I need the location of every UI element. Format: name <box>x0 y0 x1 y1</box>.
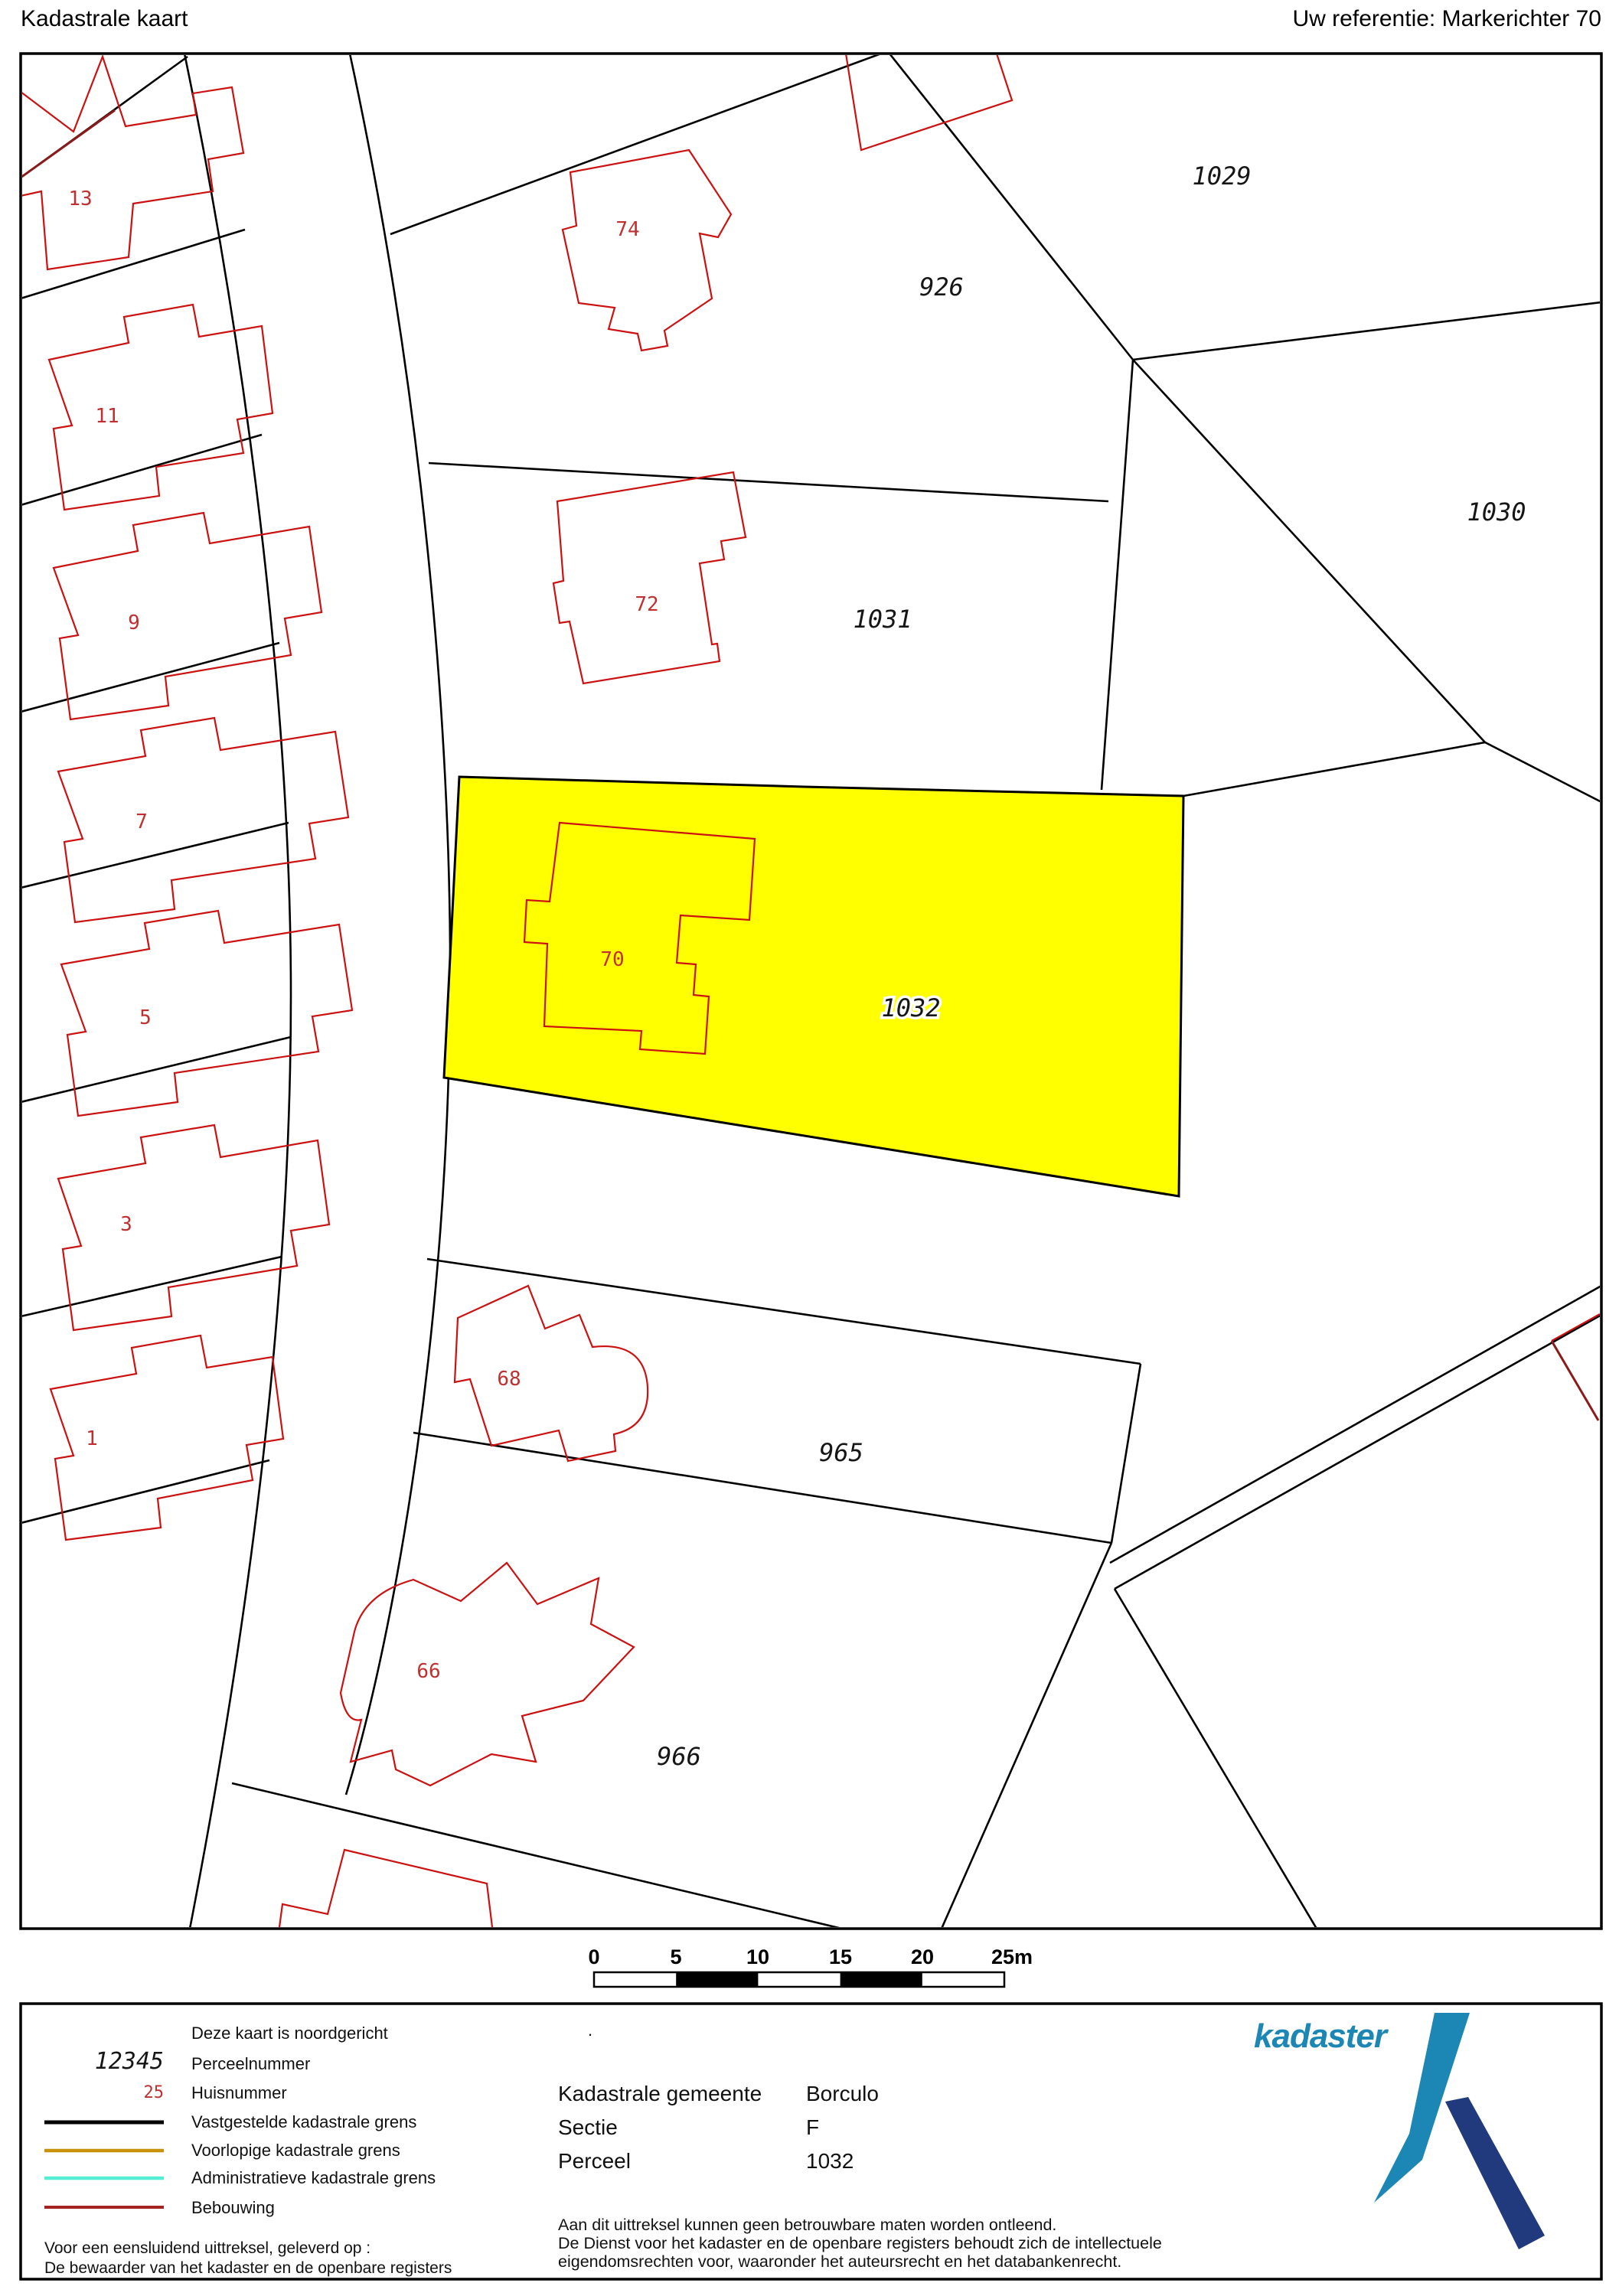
parcel-label-1032: 1032 <box>881 993 940 1022</box>
footer-eensluidend: Voor een eensluidend uittreksel, gelever… <box>44 2239 370 2258</box>
cadastral-map-canvas: 1029 926 1031 1030 1032 965 966 13 11 9 … <box>0 0 1619 2296</box>
house-label-74: 74 <box>615 218 639 241</box>
scale-tick-15: 15 <box>829 1945 852 1968</box>
house-label-13: 13 <box>68 188 92 210</box>
road-left-edge <box>184 54 291 1929</box>
legend-huisnummer: Huisnummer <box>191 2083 287 2103</box>
house-label-70: 70 <box>600 948 624 971</box>
detail-perceel-label: Perceel <box>558 2149 631 2174</box>
scale-tick-0: 0 <box>588 1945 599 1968</box>
boundary-965-top <box>427 1259 1141 1364</box>
boundary-lower-right <box>1115 1589 1317 1929</box>
legend-huisnummer-symbol: 25 <box>44 2083 164 2102</box>
house-label-7: 7 <box>135 810 148 833</box>
boundary-966-bottom <box>232 1783 842 1929</box>
boundary-965-right <box>1111 1364 1141 1543</box>
boundary-1031-1030 <box>1102 360 1133 790</box>
scale-tick-25m: 25m <box>991 1945 1033 1968</box>
parcel-label-965: 965 <box>819 1438 863 1467</box>
legend-vastgestelde-grens: Vastgestelde kadastrale grens <box>191 2112 416 2132</box>
legend-administratieve-grens: Administratieve kadastrale grens <box>191 2168 436 2188</box>
house-label-11: 11 <box>95 405 119 428</box>
parcel-label-1030: 1030 <box>1467 497 1526 527</box>
legend-voorlopige-grens: Voorlopige kadastrale grens <box>191 2141 400 2161</box>
legend-perceelnummer-symbol: 12345 <box>44 2048 164 2075</box>
kadaster-logo-icon <box>1374 2013 1545 2249</box>
road-right-edge <box>346 54 450 1795</box>
parcel-label-966: 966 <box>657 1742 701 1771</box>
road2-lower-edge <box>1115 1315 1601 1589</box>
boundary-966-right <box>942 1543 1111 1929</box>
detail-perceel-value: 1032 <box>806 2149 854 2174</box>
map-content: 1029 926 1031 1030 1032 965 966 13 11 9 … <box>21 54 1601 1929</box>
detail-gemeente-value: Borculo <box>806 2082 879 2106</box>
disclaimer-line-3: eigendomsrechten voor, waaronder het aut… <box>558 2253 1121 2271</box>
house-label-1: 1 <box>86 1427 98 1450</box>
house-label-3: 3 <box>120 1213 132 1236</box>
boundary-1030-left <box>1133 360 1485 742</box>
house-label-5: 5 <box>139 1006 152 1029</box>
boundary-965-966 <box>413 1433 1111 1543</box>
parcel-label-1029: 1029 <box>1192 161 1251 191</box>
disclaimer-line-2: De Dienst voor het kadaster en de openba… <box>558 2235 1162 2252</box>
building-clipped-right <box>1552 1314 1600 1341</box>
legend-bebouwing: Bebouwing <box>191 2198 275 2218</box>
scale-tick-10: 10 <box>746 1945 769 1968</box>
boundary-1029-1030 <box>1133 302 1601 360</box>
building-clipped-bottom <box>279 1850 492 1927</box>
building-5 <box>61 911 352 1116</box>
parcel-label-1031: 1031 <box>853 605 912 634</box>
building-13 <box>21 57 243 269</box>
boundary-overlap-dark <box>21 110 115 178</box>
building-clipped-right-dark <box>1552 1341 1598 1420</box>
house-label-72: 72 <box>635 593 658 616</box>
scale-seg-black-1 <box>676 1972 758 1987</box>
stray-dot: . <box>588 2020 592 2040</box>
kadaster-logo-text: kadaster <box>1254 2017 1386 2056</box>
building-11 <box>49 305 273 510</box>
building-74 <box>563 150 731 351</box>
footer-bewaarder: De bewaarder van het kadaster en de open… <box>44 2259 452 2278</box>
building-9 <box>54 513 322 719</box>
legend-noordgericht: Deze kaart is noordgericht <box>191 2024 388 2043</box>
house-label-66: 66 <box>416 1660 440 1683</box>
building-7 <box>58 718 348 922</box>
building-72 <box>553 472 746 683</box>
boundary-926-top <box>390 54 881 234</box>
boundary-926-1031 <box>429 463 1108 501</box>
boundary-1032-1030 <box>1183 742 1601 802</box>
scale-bar-frame <box>594 1972 1004 1987</box>
parcel-1032-highlight <box>444 777 1183 1196</box>
road2-upper-edge <box>1110 1286 1601 1563</box>
logo-stroke-dark <box>1445 2097 1545 2249</box>
house-label-9: 9 <box>128 612 140 634</box>
legend-perceelnummer: Perceelnummer <box>191 2054 310 2074</box>
detail-sectie-value: F <box>806 2115 819 2140</box>
scale-seg-black-2 <box>841 1972 922 1987</box>
disclaimer-line-1: Aan dit uittreksel kunnen geen betrouwba… <box>558 2216 1056 2234</box>
building-68 <box>455 1286 648 1461</box>
scale-tick-20: 20 <box>911 1945 934 1968</box>
house-label-68: 68 <box>497 1368 521 1391</box>
scale-tick-5: 5 <box>670 1945 681 1968</box>
detail-sectie-label: Sectie <box>558 2115 618 2140</box>
scale-bar: 0 5 10 15 20 25m <box>588 1945 1033 1987</box>
parcel-label-926: 926 <box>919 272 964 302</box>
detail-gemeente-label: Kadastrale gemeente <box>558 2082 762 2106</box>
building-66 <box>341 1563 634 1786</box>
